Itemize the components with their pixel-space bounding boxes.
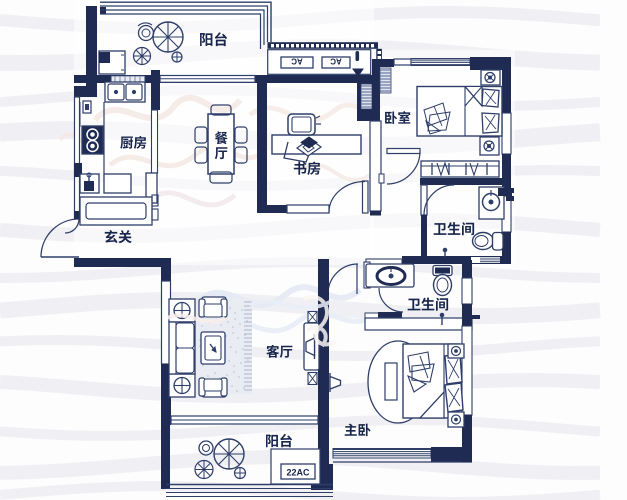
svg-text:22AC: 22AC bbox=[286, 468, 310, 478]
svg-text:AC: AC bbox=[330, 57, 342, 66]
svg-text:AC: AC bbox=[291, 57, 303, 66]
